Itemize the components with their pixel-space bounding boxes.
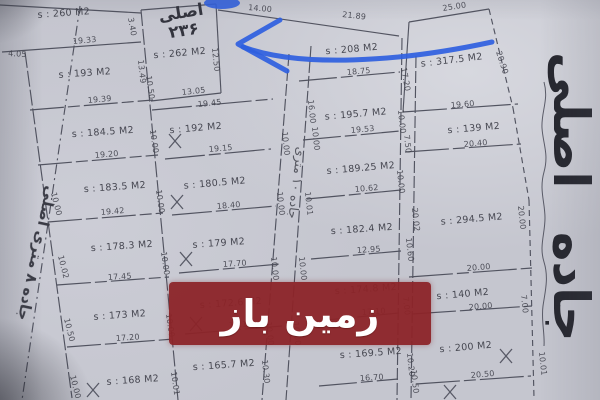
parcel-area-label: s : 180.5 M2 bbox=[183, 175, 246, 191]
dimension-label: 10.01 bbox=[303, 191, 314, 216]
parcel-area-label: s : 262 M2 bbox=[153, 46, 206, 62]
parcel-area-label: s : 208 M2 bbox=[325, 42, 378, 58]
parcel-area-label: s : 168 M2 bbox=[106, 373, 159, 388]
parcel-area-label: s : 195.7 M2 bbox=[324, 106, 387, 122]
parcel-area-label: s : 165.7 M2 bbox=[192, 358, 255, 373]
cadastral-map-photo: 4.0519.3314.0021.8925.003.4013.4912.5013… bbox=[0, 0, 600, 400]
dimension-label: 17.70 bbox=[223, 258, 247, 269]
parcel-area-label: s : 179 M2 bbox=[192, 236, 245, 251]
dimension-label: 20.40 bbox=[463, 138, 488, 149]
dimension-label: 17.45 bbox=[108, 271, 132, 282]
dimension-label: 4.05 bbox=[8, 49, 27, 59]
dimension-label: 19.33 bbox=[72, 35, 97, 46]
dimension-label: 19.15 bbox=[208, 143, 233, 154]
dimension-label: 19.45 bbox=[197, 98, 222, 109]
dimension-label: 3.40 bbox=[126, 17, 138, 37]
watermark-text: زمین باز bbox=[221, 295, 380, 333]
dimension-label: 25.00 bbox=[442, 0, 467, 13]
dimension-label: 10.00 bbox=[396, 109, 407, 134]
dimension-label: 10.00 bbox=[159, 251, 171, 276]
parcel-area-label: s : 140 M2 bbox=[436, 287, 489, 303]
dimension-label: 12.50 bbox=[210, 47, 221, 72]
dimension-label: 20.00 bbox=[468, 301, 493, 312]
boundary-line bbox=[319, 379, 398, 386]
boundary-line bbox=[262, 54, 289, 400]
parcel-area-label: s : 294.5 M2 bbox=[440, 211, 503, 227]
dimension-label: 21.89 bbox=[342, 10, 367, 21]
dimension-label: 10.00 bbox=[269, 256, 280, 281]
parcel-area-label: s : 182.4 M2 bbox=[330, 222, 393, 237]
dimension-label: 10.02 bbox=[56, 254, 71, 279]
dimension-label: 19.42 bbox=[100, 206, 125, 217]
parcel-area-label: s : 169.5 M2 bbox=[339, 346, 402, 361]
dimension-label: 20.00 bbox=[516, 205, 527, 230]
parcel-area-label: s : 183.5 M2 bbox=[83, 180, 146, 195]
dimension-label: 16.00 bbox=[306, 99, 317, 124]
dimension-label: 14.00 bbox=[248, 3, 273, 14]
dimension-label: 10.01 bbox=[537, 351, 548, 376]
dimension-label: 10.01 bbox=[169, 371, 181, 396]
dimension-label: 20.02 bbox=[410, 207, 421, 232]
dimension-label: 10.00 bbox=[154, 189, 166, 214]
parcel-area-label: s : 260 M2 bbox=[37, 6, 90, 21]
dimension-label: 20.90 bbox=[494, 50, 510, 76]
boundary-line bbox=[513, 108, 529, 200]
dimension-label: 10.60 bbox=[404, 237, 415, 262]
parcel-area-label: s : 189.25 M2 bbox=[326, 160, 395, 177]
parcel-area-label: s : 200 M2 bbox=[439, 340, 492, 356]
parcel-area-label: s : 173 M2 bbox=[93, 308, 146, 323]
main-road-label: جاده اصلی bbox=[542, 52, 600, 342]
dimension-label: 12.95 bbox=[357, 244, 381, 255]
parcel-area-label: s : 184.5 M2 bbox=[71, 125, 134, 140]
parcel-area-label: s : 193 M2 bbox=[58, 66, 111, 81]
parcel-area-label: s : 139 M2 bbox=[447, 121, 500, 137]
dimension-label: 7.00 bbox=[519, 294, 530, 313]
dimension-label: 10.00 bbox=[297, 256, 308, 281]
dimension-label: 17.20 bbox=[116, 332, 140, 343]
parcel-area-label: s : 178.3 M2 bbox=[90, 239, 153, 254]
dimension-label: 19.60 bbox=[450, 99, 475, 110]
dimension-label: 10.30 bbox=[260, 359, 271, 384]
watermark-banner: زمین باز bbox=[169, 282, 431, 345]
dimension-label: 10.50 bbox=[144, 75, 156, 100]
parcel-area-label: s : 192 M2 bbox=[169, 121, 222, 137]
dimension-label: 16.70 bbox=[360, 372, 384, 383]
boundary-line bbox=[218, 10, 399, 36]
boundary-line bbox=[529, 200, 534, 398]
dimension-label: 7.50 bbox=[402, 134, 413, 153]
dimension-label: 10.00 bbox=[310, 126, 321, 151]
dimension-label: 10.00 bbox=[148, 129, 160, 154]
